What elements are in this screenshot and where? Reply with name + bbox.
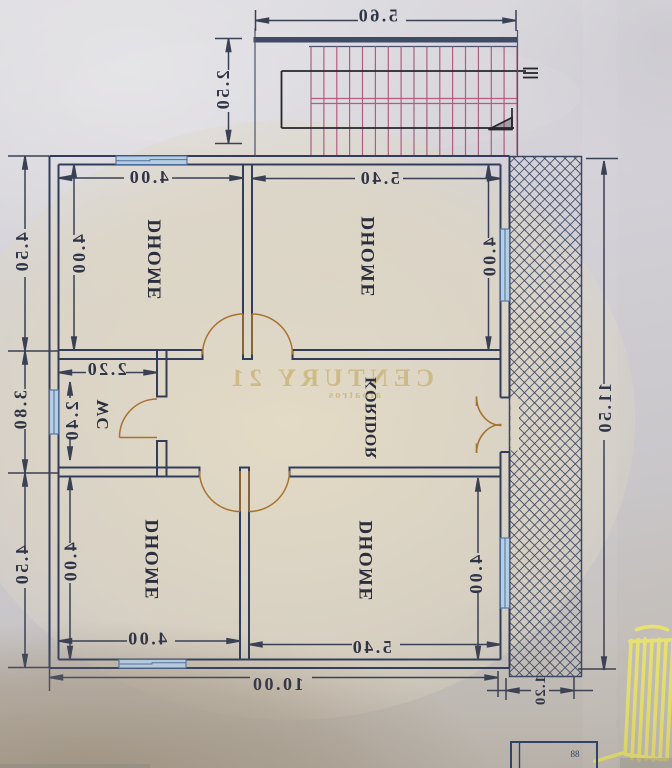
svg-text:4.00: 4.00 [127, 167, 169, 187]
svg-text:4.00: 4.00 [126, 629, 168, 649]
svg-text:DHOME: DHOME [145, 219, 166, 300]
svg-text:4.00: 4.00 [69, 234, 89, 276]
svg-text:DHOME: DHOME [358, 216, 379, 297]
svg-text:5.40: 5.40 [350, 637, 392, 657]
svg-text:4.00: 4.00 [480, 237, 500, 279]
svg-text:4.00: 4.00 [466, 555, 486, 597]
svg-text:CENTURY 21: CENTURY 21 [226, 365, 434, 392]
svg-text:5.40: 5.40 [358, 168, 400, 188]
svg-text:4.00: 4.00 [61, 542, 81, 584]
svg-text:DHOME: DHOME [142, 519, 163, 600]
svg-text:2.40: 2.40 [62, 401, 82, 443]
svg-text:4.50: 4.50 [12, 545, 32, 587]
svg-text:5.60: 5.60 [356, 6, 398, 26]
svg-text:WC: WC [93, 399, 112, 430]
svg-text:4.50: 4.50 [12, 232, 32, 274]
svg-text:88: 88 [570, 749, 580, 759]
svg-text:2.20: 2.20 [85, 359, 127, 379]
svg-text:11.50: 11.50 [595, 383, 615, 435]
svg-text:10.00: 10.00 [251, 674, 304, 694]
svg-text:3.80: 3.80 [11, 390, 31, 432]
svg-text:1.20: 1.20 [533, 676, 549, 706]
svg-text:DHOME: DHOME [356, 520, 377, 601]
svg-text:KORIDOR: KORIDOR [363, 377, 380, 459]
svg-text:2.50: 2.50 [213, 70, 233, 112]
